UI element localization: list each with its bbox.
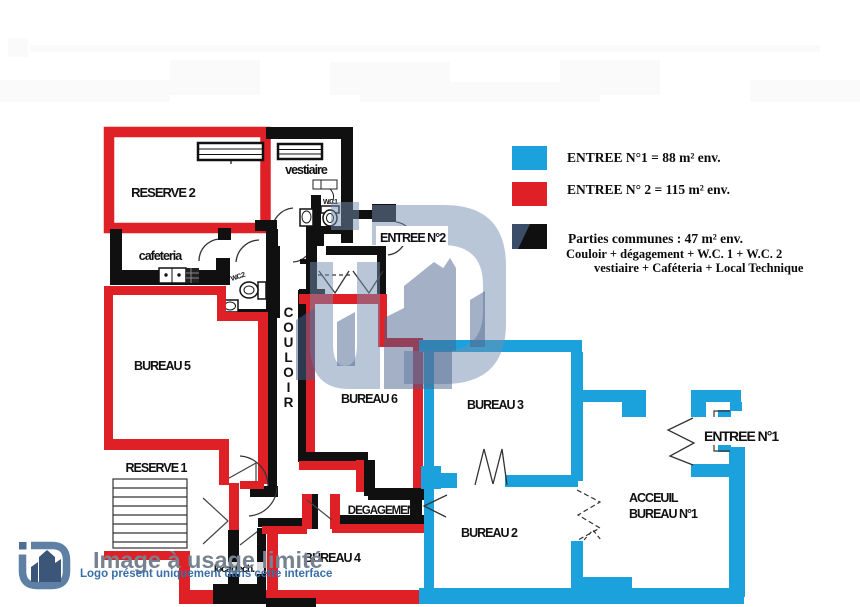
svg-text:BUREAU 6: BUREAU 6	[341, 392, 398, 406]
svg-text:BUREAU 3: BUREAU 3	[467, 398, 524, 412]
svg-text:RESERVE 2: RESERVE 2	[131, 185, 196, 200]
svg-text:Parties communes : 47 m² env.: Parties communes : 47 m² env.	[568, 231, 743, 246]
svg-text:C: C	[284, 305, 294, 320]
svg-text:ACCEUIL: ACCEUIL	[629, 491, 679, 505]
svg-text:BUREAU 5: BUREAU 5	[134, 359, 191, 373]
svg-text:L: L	[284, 350, 292, 365]
svg-text:U: U	[284, 335, 293, 350]
svg-text:Couloir + dégagement + W.C. 1: Couloir + dégagement + W.C. 1 + W.C. 2	[566, 247, 782, 261]
svg-text:BUREAU N°1: BUREAU N°1	[629, 507, 698, 521]
svg-text:vestiaire: vestiaire	[285, 163, 328, 177]
svg-text:Logo présent uniquement dans c: Logo présent uniquement dans cette inter…	[80, 568, 332, 580]
svg-text:ENTREE N°1 = 88 m² env.: ENTREE N°1 = 88 m² env.	[567, 150, 721, 165]
svg-text:R: R	[284, 395, 294, 410]
svg-text:cafeteria: cafeteria	[139, 249, 183, 263]
svg-text:O: O	[283, 320, 293, 335]
svg-text:RESERVE 1: RESERVE 1	[126, 461, 188, 475]
svg-text:ENTREE N°1: ENTREE N°1	[704, 428, 779, 444]
svg-text:ENTREE N°2: ENTREE N°2	[380, 231, 446, 245]
svg-text:BUREAU 2: BUREAU 2	[461, 526, 518, 540]
svg-text:O: O	[283, 365, 293, 380]
svg-text:ENTREE N° 2 = 115 m² env.: ENTREE N° 2 = 115 m² env.	[567, 182, 730, 197]
svg-text:vestiaire + Caféteria + Local: vestiaire + Caféteria + Local Technique	[594, 261, 804, 275]
svg-text:I: I	[287, 380, 290, 395]
